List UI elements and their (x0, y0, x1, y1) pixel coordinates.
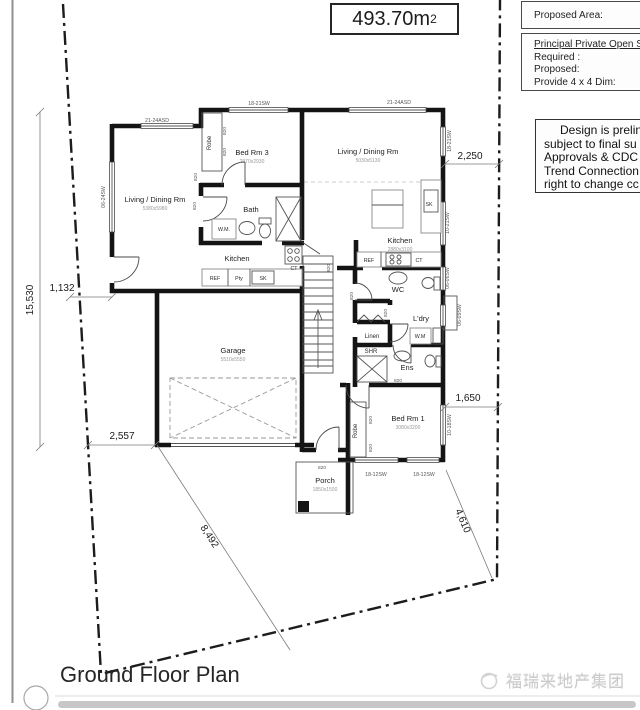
label-sk-left: SK (259, 276, 267, 282)
toilet-ens (425, 355, 435, 367)
label-ct-right: CT (415, 258, 423, 264)
room-label-garage: Garage (220, 346, 245, 355)
total-area-box: 493.70m2 (330, 3, 459, 35)
window-label: 10-18SW (447, 414, 453, 436)
room-label-bed1: Bed Rm 1 (391, 414, 424, 423)
design-note-line1: Design is prelin (544, 124, 640, 138)
door-820: 820 (193, 173, 199, 181)
window-label: 18-21SW (248, 101, 270, 107)
floor-plan-page: Living / Dining Rm 5380x5980 Bed Rm 3 29… (0, 0, 640, 710)
dim-2557: 2,557 (109, 431, 134, 442)
watermark-text: 福瑞来地产集团 (506, 668, 625, 692)
room-label-shr: SHR (365, 349, 378, 355)
title-bubble-circle (24, 686, 48, 710)
dim-15530: 15,530 (25, 284, 36, 315)
toilet-tank-ens (436, 356, 441, 367)
label-sk-right: SK (425, 202, 433, 208)
fixtures (170, 113, 443, 513)
room-label-wc: WC (392, 285, 405, 294)
open-space-required: Required : (534, 52, 640, 65)
door-820: 820 (192, 202, 198, 210)
door-820: 820 (318, 465, 326, 471)
room-label-kitchen-right: Kitchen (387, 236, 412, 245)
window-label: 18-12SW (413, 472, 435, 478)
garage-car-space (170, 378, 296, 438)
cooktop-kitchen-left (285, 246, 302, 264)
room-size-bed1: 3080x3200 (396, 425, 421, 431)
room-label-ldry: L'dry (413, 314, 429, 323)
open-space-panel: Principal Private Open Spa Required : Pr… (521, 33, 640, 91)
room-size-kitchen-right: 2880x3100 (388, 247, 413, 253)
stairs (303, 256, 333, 373)
watermark-logo-icon (478, 669, 500, 691)
proposed-area-label: Proposed Area: (534, 10, 603, 21)
window-label: 21-24ASD (387, 100, 411, 106)
open-space-proposed: Proposed: (534, 64, 640, 77)
dim-1650: 1,650 (455, 393, 480, 404)
toilet-tank-bath (259, 218, 271, 224)
design-note-line2: subject to final su (544, 138, 640, 152)
window-label: 06-06SW (445, 267, 451, 289)
design-note-panel: Design is prelin subject to final su App… (535, 119, 640, 193)
basin-wc (389, 272, 407, 284)
room-label-ens: Ens (401, 363, 414, 372)
room-size-living-left: 5380x5980 (143, 206, 168, 212)
dim-1132: 1,132 (49, 283, 74, 294)
window-label: 06-09SW (457, 304, 463, 326)
label-ref-right: REF (364, 258, 375, 264)
porch-column (298, 501, 309, 512)
room-size-porch: 1850x1500 (313, 487, 338, 493)
window-label: 21-24ASD (145, 118, 169, 124)
dim-4610: 4,610 (452, 507, 472, 535)
door-820: 820 (368, 444, 374, 452)
room-size-bed3: 2970x2930 (240, 159, 265, 165)
kitchen-island (372, 190, 403, 228)
room-label-robe-bed3: Robe (207, 135, 213, 150)
label-wm-bath: W.M. (218, 227, 230, 233)
room-size-living-right: 5030x5130 (356, 158, 381, 164)
door-820: 820 (326, 264, 332, 272)
door-820: 820 (222, 127, 228, 135)
room-label-bath: Bath (243, 205, 258, 214)
door-820: 820 (368, 416, 374, 424)
open-space-provide: Provide 4 x 4 Dim: (534, 77, 640, 90)
floor-plan-drawing: Living / Dining Rm 5380x5980 Bed Rm 3 29… (0, 0, 640, 710)
dim-8492: 8,492 (198, 523, 221, 550)
video-progress-bar[interactable] (58, 701, 636, 708)
door-820: 820 (394, 378, 402, 384)
proposed-area-panel: Proposed Area: (521, 1, 640, 29)
door-820: 820 (349, 292, 355, 300)
drawing-title: Ground Floor Plan (60, 662, 240, 688)
label-ref-left: REF (210, 276, 221, 282)
design-note-line4: Trend Connection (544, 165, 640, 179)
room-label-living-left: Living / Dining Rm (125, 195, 186, 204)
design-note-line3: Approvals & CDC (544, 151, 640, 165)
design-note-line5: right to change cc (544, 178, 640, 192)
window-label: 18-12SW (365, 472, 387, 478)
door-820: 820 (222, 148, 228, 156)
door-820: 820 (383, 309, 389, 317)
room-label-porch: Porch (315, 476, 335, 485)
toilet-tank-wc (434, 277, 440, 290)
label-ct-left: CT (290, 266, 298, 272)
room-label-robe-bed1: Robe (353, 423, 359, 438)
watermark: 福瑞来地产集团 (478, 668, 625, 692)
room-label-living-right: Living / Dining Rm (338, 147, 399, 156)
open-space-title: Principal Private Open Spa (534, 39, 640, 52)
label-wm-ldry: W.M (415, 334, 426, 340)
window-label: 18-21SW (447, 130, 453, 152)
toilet-bath (260, 224, 271, 238)
label-pty: Pty (235, 276, 243, 282)
room-label-kitchen-left: Kitchen (224, 254, 249, 263)
toilet-wc (422, 278, 434, 289)
walls (110, 108, 445, 515)
window-label: 06-24SW (101, 186, 107, 208)
dim-2250: 2,250 (457, 151, 482, 162)
total-area-value: 493.70m (352, 8, 430, 31)
window-label: 10-21SW (445, 212, 451, 234)
room-label-bed3: Bed Rm 3 (235, 148, 268, 157)
room-label-linen: Linen (365, 334, 380, 340)
basin-bath (239, 222, 255, 235)
site-boundary (63, 0, 500, 674)
room-size-garage: 5510x5550 (221, 357, 246, 363)
